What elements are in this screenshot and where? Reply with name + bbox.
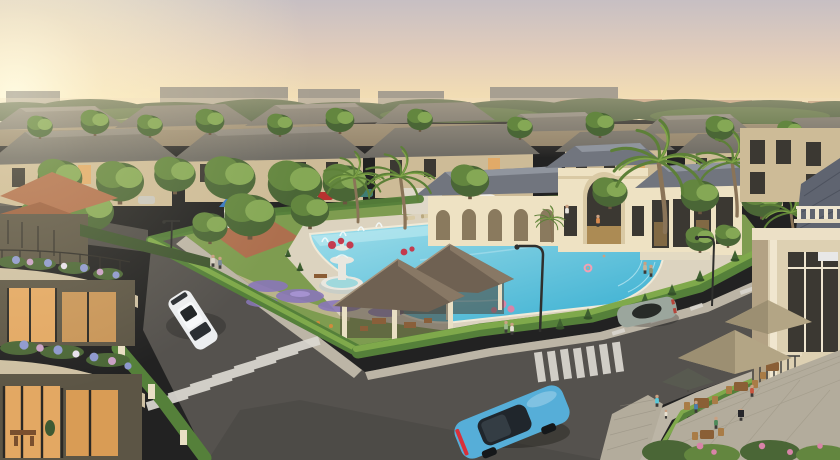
scene-canvas <box>0 0 840 460</box>
sun-haze-overlay <box>0 0 840 460</box>
resort-rendering-scene <box>0 0 840 460</box>
